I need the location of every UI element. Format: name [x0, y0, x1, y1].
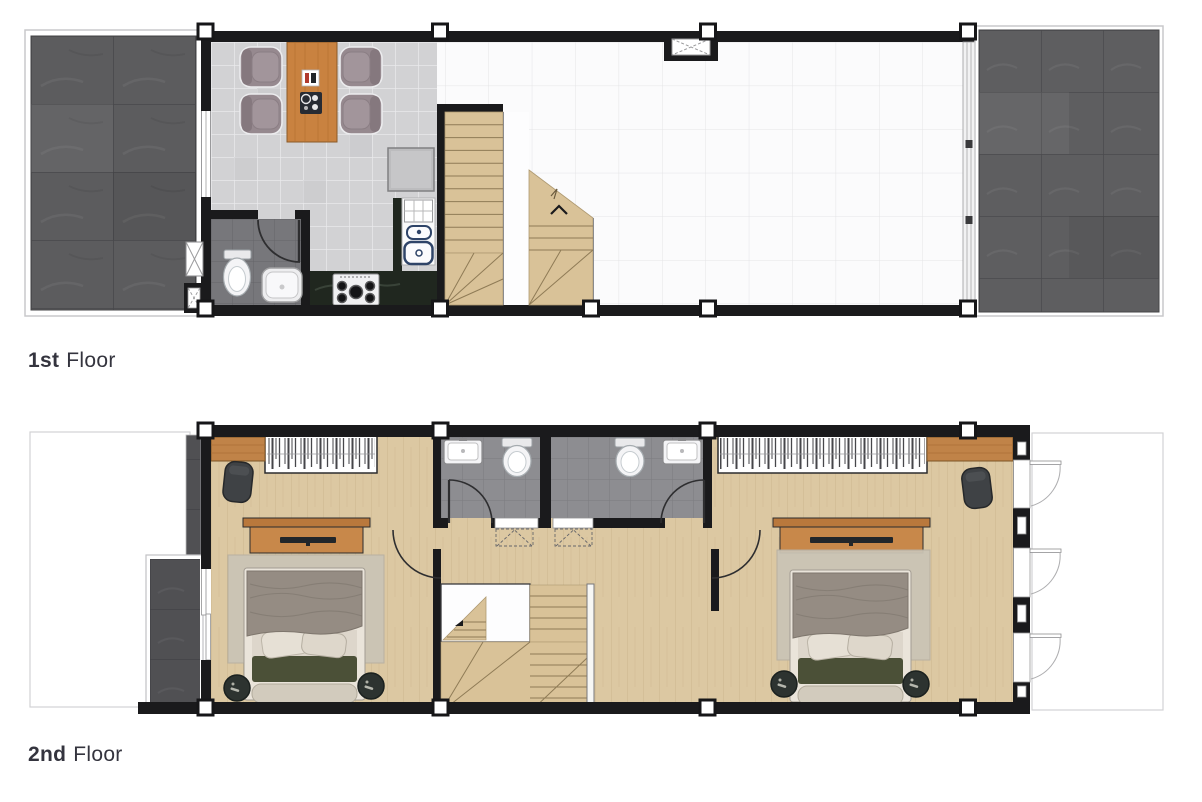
column-marker: [433, 24, 448, 39]
column-marker: [961, 301, 976, 316]
column-marker: [198, 301, 213, 316]
floorplan-page: 1stFloor: [0, 0, 1202, 802]
column-marker: [961, 24, 976, 39]
armchair: [222, 461, 254, 504]
refrigerator: [388, 148, 434, 191]
dining-table: [287, 42, 337, 142]
kitchen-sink: [402, 198, 435, 265]
wardrobe: [718, 435, 927, 473]
first-floor-plan: [0, 0, 1202, 340]
first-floor-label: 1stFloor: [28, 349, 116, 373]
footprint-outline-right: [1032, 433, 1163, 710]
column-marker: [433, 700, 448, 715]
staircase: [433, 582, 594, 712]
shelf: [211, 437, 265, 461]
wardrobe: [265, 435, 377, 473]
column-marker: [584, 301, 599, 316]
tv: [280, 537, 336, 543]
column-marker: [700, 700, 715, 715]
column-marker: [701, 24, 716, 39]
stair-railing: [587, 584, 594, 712]
tv-console: [243, 518, 370, 553]
dining-chair: [340, 94, 382, 134]
terrace-left: [25, 30, 202, 316]
dining-chair: [340, 47, 382, 87]
table-tray: [302, 70, 319, 86]
balcony: [146, 555, 203, 705]
washbasin: [262, 268, 302, 302]
dining-chair: [240, 47, 282, 87]
threshold: [553, 518, 593, 528]
column-marker: [433, 301, 448, 316]
column-marker: [198, 423, 213, 438]
floor-word: Floor: [73, 743, 122, 766]
left-wall-window: [201, 106, 211, 202]
sliding-glass-wall: [963, 42, 975, 305]
bed: [790, 570, 911, 705]
washbasin: [444, 438, 482, 464]
bathroom-divider-wall: [540, 437, 551, 528]
toilet: [224, 250, 252, 296]
column-marker: [198, 700, 213, 715]
column-marker: [198, 24, 213, 39]
column-marker: [961, 423, 976, 438]
tv-console: [773, 518, 930, 553]
threshold: [495, 518, 538, 528]
stove: [333, 274, 379, 305]
bed: [244, 568, 365, 703]
column-marker: [700, 423, 715, 438]
pouf: [771, 671, 797, 697]
floor-number: 2nd: [28, 743, 66, 766]
toilet: [615, 438, 645, 477]
shelf: [927, 437, 1013, 461]
second-floor-plan: [0, 418, 1202, 718]
column-marker: [961, 700, 976, 715]
louver-window: [186, 242, 203, 276]
dining-chair: [240, 94, 282, 134]
washbasin: [663, 438, 701, 464]
terrace-right: [975, 26, 1163, 316]
pouf: [224, 675, 250, 701]
pouf: [903, 671, 929, 697]
planter-ledge: [186, 435, 201, 558]
tv: [810, 537, 893, 543]
column-marker: [701, 301, 716, 316]
floor-word: Floor: [66, 349, 115, 372]
armchair: [961, 466, 994, 509]
second-floor-label: 2ndFloor: [28, 743, 123, 767]
pouf: [358, 673, 384, 699]
floor-number: 1st: [28, 349, 59, 372]
column-marker: [433, 423, 448, 438]
toilet: [502, 438, 532, 477]
